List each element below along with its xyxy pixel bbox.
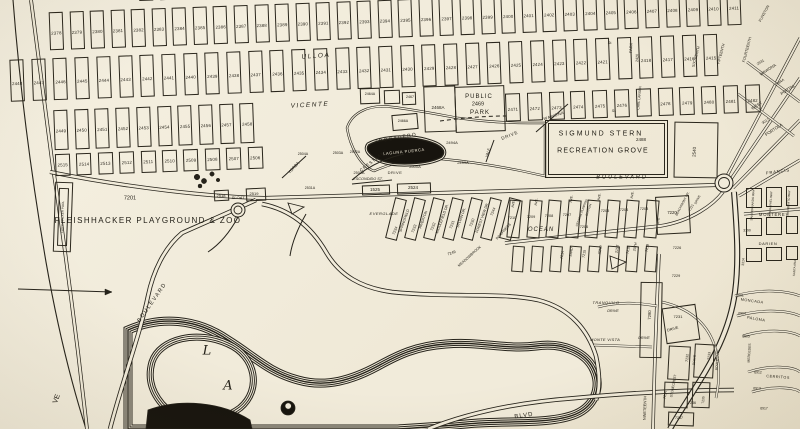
label-2501a: 2501A: [354, 172, 365, 176]
label-7210: 7210: [508, 217, 516, 221]
label-7214: 7214: [561, 251, 566, 260]
label-2468a: 2468A: [431, 106, 444, 111]
label-3314: 3314: [742, 258, 746, 266]
label-2519: 2519: [250, 192, 259, 196]
label-drive: DRIVE: [638, 337, 650, 341]
label-sixteenth: SIXTEENTH: [692, 46, 701, 68]
label-2984a: 2984A: [775, 79, 786, 88]
label-ave: AVE.: [512, 200, 517, 208]
label-ocean: OCEAN: [528, 227, 554, 233]
label-carl-larsen: CARL LARSEN: [637, 86, 642, 110]
label-drive: DRIVE: [694, 195, 701, 205]
label-7231: 7231: [674, 315, 683, 319]
label-ve: VE: [52, 393, 62, 404]
label-drive: DRIVE: [501, 131, 519, 142]
label-2500a: 2500A: [409, 165, 421, 169]
label-nineteenth: NINETEENTH: [644, 396, 649, 420]
label-7249: 7249: [447, 251, 456, 257]
label-fourteenth: FOURTEENTH: [743, 37, 753, 63]
label-santa-ana: SANTA ANA: [793, 260, 797, 277]
label-2518: 2518: [217, 194, 226, 198]
label-san-fernando-way: SAN FERNANDO WAY: [750, 189, 755, 220]
label-wawona: WAWONA: [759, 63, 777, 76]
label-moncada: MONCADA: [740, 299, 763, 306]
label-west: WEST: [751, 101, 763, 111]
label-7229: 7229: [672, 275, 680, 279]
label-crestlake: CRESTLAKE: [359, 149, 389, 173]
label-vale: VALE: [486, 148, 493, 158]
label-2469: 2469: [472, 102, 484, 108]
label-7221: 7221: [689, 204, 696, 212]
label-funston: FUNSTON: [759, 5, 771, 23]
label-fleishhacker-playground-zoo: FLEISHHACKER PLAYGROUND & ZOO: [55, 217, 242, 225]
label-sigmund-stern: SIGMUND STERN: [559, 131, 644, 138]
label-7215: 7215: [583, 250, 588, 259]
label-ulloa: ULLOA: [301, 53, 330, 61]
label-6917: 6917: [760, 407, 768, 410]
label-park: PARK: [470, 110, 490, 116]
label-vicente: VICENTE: [291, 102, 330, 111]
label-7232: 7232: [686, 354, 690, 362]
label-7206: 7206: [580, 226, 588, 230]
label-paloma: PALOMA: [747, 317, 766, 324]
label-boulevard: BOULEVARD: [137, 282, 168, 324]
label-ave: AVE.: [570, 195, 575, 203]
label-22nd: 22ND: [598, 245, 603, 255]
label-7209: 7209: [527, 216, 535, 220]
label-station: STATION: [585, 204, 592, 217]
label-7203: 7203: [640, 208, 648, 212]
label-7218: 7218: [627, 246, 632, 255]
vintage-street-map: 2378237923802381238223832384238523862387…: [0, 0, 800, 429]
label-mercedes: MERCEDES: [748, 343, 753, 362]
label-trocadero: TROCADERO: [375, 133, 418, 145]
label-20th: 20TH: [633, 242, 638, 251]
label-boulevard: BOULEVARD: [596, 175, 648, 181]
label-2531a: 2531A: [305, 187, 315, 191]
label-yorba: YORBA: [288, 161, 301, 175]
label-2931: 2931: [757, 59, 766, 66]
label-7208: 7208: [545, 215, 553, 219]
label-drive: DRIVE: [388, 171, 403, 175]
label-2464a: 2464A: [365, 93, 375, 97]
label-riverton: RIVERTON: [419, 211, 429, 230]
label-7219: 7219: [646, 244, 651, 253]
label-2494a: 2494A: [446, 141, 458, 145]
label-st: St.: [608, 42, 612, 46]
label-san-benito-way: SAN BENITO WAY: [787, 190, 792, 216]
label-2524: 2524: [408, 186, 418, 191]
label-portola: PORTOLA: [765, 123, 784, 137]
label-6905: 6905: [742, 335, 750, 338]
label-fifteenth: FIFTEENTH: [717, 43, 726, 64]
label-springfield: SPRINGFIELD: [399, 209, 411, 233]
label-public: PUBLIC: [465, 94, 493, 100]
label-7207: 7207: [563, 214, 571, 218]
label-drive: DRIVE: [667, 327, 679, 334]
label-fleishhacker-pool: FLEISHHACKER POOL: [61, 201, 65, 233]
label-2499a: 2499A: [457, 161, 469, 165]
label-tranquilo: TRANQUILO: [593, 301, 620, 305]
label-recreation-grove: RECREATION GROVE: [557, 148, 649, 155]
label-beachmont-dr: BEACHMONT DR.: [675, 191, 690, 216]
label-6904: 6904: [738, 312, 746, 315]
label-7201: 7201: [124, 196, 136, 202]
label-laguna-puerca: LAGUNA PUERCA: [383, 148, 425, 156]
label-stonecrest: STONECREST: [670, 374, 677, 397]
label-blvd: BLVD: [514, 412, 534, 421]
label-7244: 7244: [491, 207, 497, 216]
label-2503a: 2503A: [333, 152, 343, 156]
label-ave: AVE: [657, 218, 661, 225]
label-7205: 7205: [601, 210, 609, 214]
label-wawona: WAWONA: [543, 111, 565, 121]
label-7234: 7234: [664, 391, 669, 400]
label-7236: 7236: [688, 402, 696, 406]
label-portal: PORTAL: [780, 84, 796, 96]
label-23rd: 23RD: [569, 247, 574, 257]
label-a: A: [223, 380, 232, 393]
label-2467: 2467: [406, 96, 414, 100]
label-forest-view-dr: FOREST VIEW DR.: [476, 202, 490, 233]
label-l: L: [203, 345, 212, 358]
label-monterey: MONTEREY: [759, 213, 789, 217]
label-everglade: EVERGLADE: [370, 212, 399, 216]
label-sylvan-dr: SYLVAN DR.: [457, 208, 468, 229]
label-middlefield-dr: MIDDLEFIELD DR.: [436, 204, 450, 234]
label-park: PARK: [630, 43, 634, 53]
label-2540: 2540: [692, 147, 697, 157]
label-boulevard: BOULEVARD: [716, 350, 721, 371]
label-ave: AVE.: [598, 193, 603, 201]
label-7280: 7280: [648, 310, 653, 319]
label-drive: DRIVE: [607, 310, 619, 314]
label-21st: 21ST: [615, 244, 620, 253]
label-7233: 7233: [708, 352, 712, 360]
label-7230: 7230: [470, 218, 476, 227]
label-7233: 7233: [412, 224, 418, 233]
label-7237: 7237: [675, 417, 683, 421]
label-6913: 6913: [753, 387, 761, 390]
label-2488: 2488: [636, 138, 646, 143]
label-7235: 7235: [702, 396, 706, 404]
label-3190: 3190: [743, 229, 751, 232]
label-1525: 1525: [370, 188, 380, 193]
label-sloat: SLOAT: [232, 196, 245, 200]
label-inverness: INVERNESS: [496, 223, 513, 241]
label-3017: 3017: [762, 118, 771, 125]
label-ave: AVE.: [535, 198, 540, 206]
label-monte-vista: MONTE VISTA: [590, 338, 620, 342]
label-meadowbrook: MEADOWBROOK: [458, 246, 482, 268]
label-6912: 6912: [754, 371, 762, 374]
label-7226: 7226: [673, 247, 681, 251]
label-2420: 2420: [636, 54, 640, 62]
label-2502a: 2502A: [350, 151, 360, 155]
label-escondido-st: ESCONDIDO ST.: [353, 178, 383, 182]
label-francis: FRANCIS: [766, 168, 790, 176]
label-2504a: 2504A: [298, 153, 308, 157]
label-darien: DARIEN: [759, 242, 778, 246]
label-cerritos: CERRITOS: [766, 375, 790, 380]
map-labels: FLEISHHACKER PLAYGROUND & ZOO7201FLEISHH…: [0, 0, 800, 429]
label-drive: DRIVE: [693, 355, 697, 366]
label-ave: AVE.: [631, 191, 636, 199]
label-st: St.: [612, 110, 616, 114]
label-2466a: 2466A: [398, 120, 408, 124]
label-7204: 7204: [620, 209, 628, 213]
